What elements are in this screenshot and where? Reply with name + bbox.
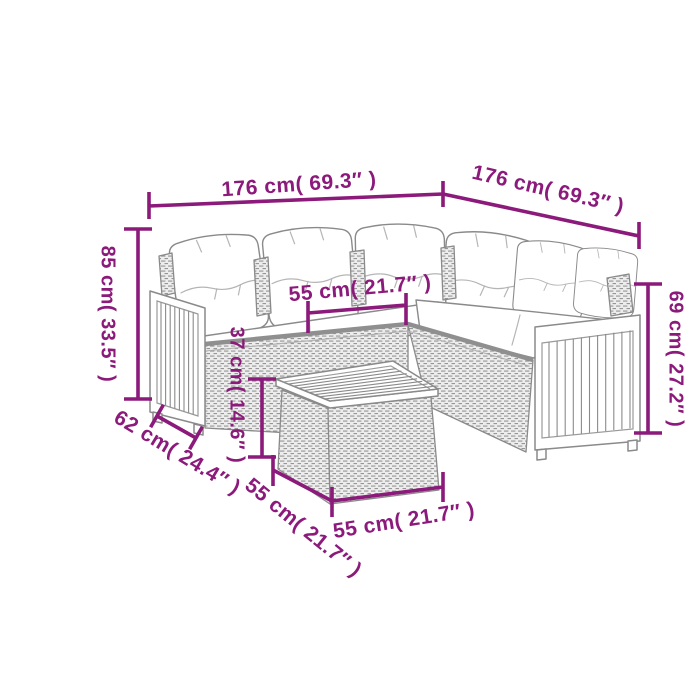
dimension-label-table-height: 37 cm( 14.6″ ) [225, 327, 248, 464]
dimension-label-back-height: 85 cm( 33.5″ ) [96, 246, 119, 383]
dimension-label-arm-height: 69 cm( 27.2″ ) [664, 291, 687, 428]
right-armrest-panel [535, 315, 640, 460]
product-dimension-diagram: 176 cm( 69.3″ ) 176 cm( 69.3″ ) 85 cm( 3… [0, 0, 700, 700]
